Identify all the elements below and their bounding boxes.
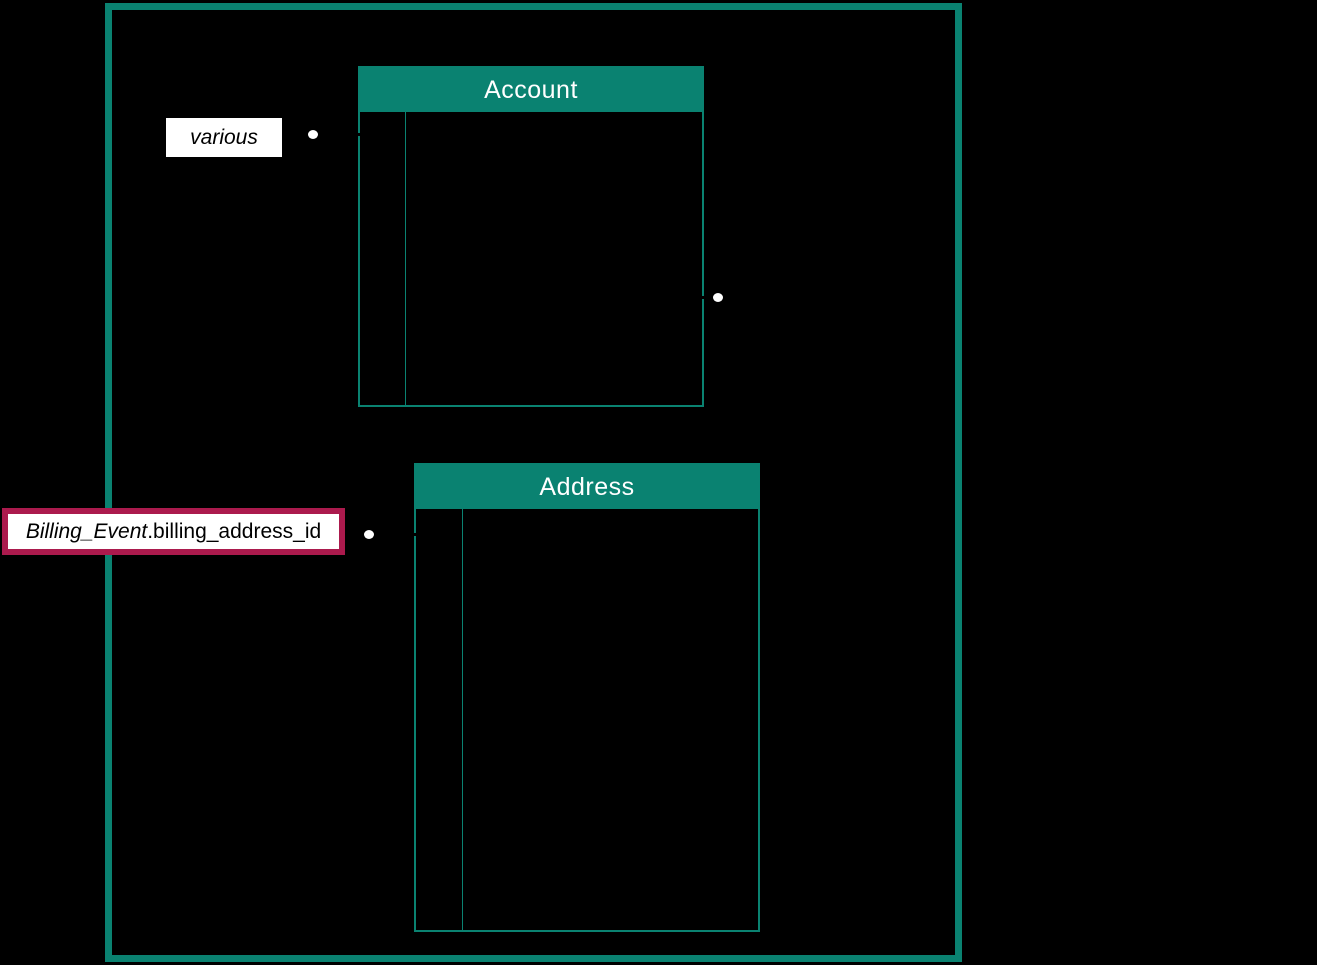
connector-line-stub (353, 133, 363, 136)
connector-endpoint-dot (308, 130, 318, 139)
annotation-label-various-text: various (190, 126, 258, 150)
connector-line-stub (409, 533, 419, 536)
annotation-label-billing-address-fk: Billing_Event.billing_address_id (2, 508, 345, 555)
annotation-label-billing-column-text: .billing_address_id (147, 520, 321, 544)
annotation-label-various: various (166, 118, 282, 157)
connector-line-stub (697, 296, 707, 299)
annotation-label-billing-entity-text: Billing_Event (26, 520, 147, 544)
entity-table-account-body (360, 112, 702, 405)
entity-table-address-title: Address (539, 473, 634, 502)
connector-endpoint-dot (713, 293, 723, 302)
entity-table-account-title: Account (484, 76, 578, 105)
entity-table-address-body (416, 509, 758, 930)
connector-endpoint-dot (364, 530, 374, 539)
entity-table-address: Address (414, 463, 760, 932)
entity-table-account: Account (358, 66, 704, 407)
key-column-divider (462, 509, 463, 930)
er-diagram-canvas: Account Address various Billing_Event.bi… (0, 0, 1317, 965)
key-column-divider (405, 112, 406, 405)
entity-table-account-header: Account (360, 68, 702, 112)
entity-table-address-header: Address (416, 465, 758, 509)
